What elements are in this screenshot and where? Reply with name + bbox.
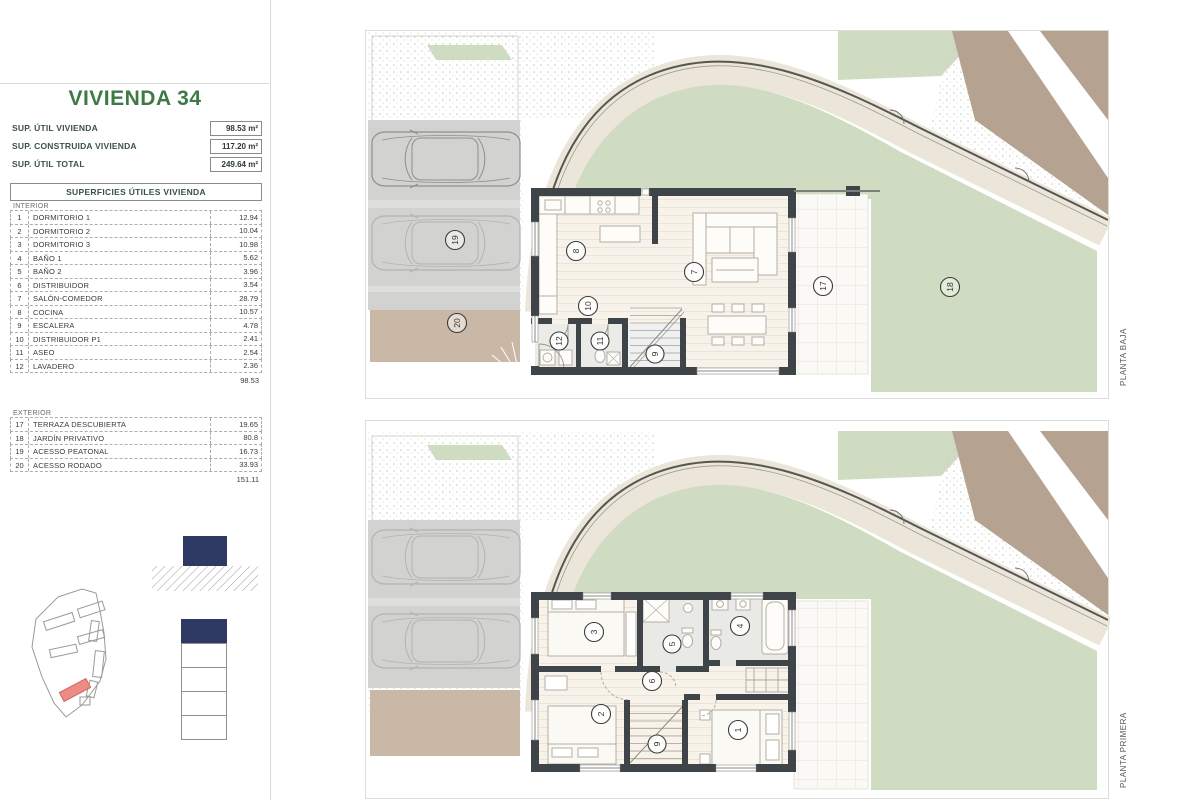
summary-value: 98.53 m² [210, 121, 262, 136]
svg-text:20: 20 [452, 318, 462, 328]
row-name: ESCALERA [29, 319, 211, 332]
row-number: 6 [11, 279, 29, 292]
room-circle: 20 [448, 314, 467, 333]
table-row: 3 DORMITORIO 3 10.98 [10, 237, 262, 252]
row-value: 28.79 [211, 294, 261, 303]
table-row: 5 BAÑO 2 3.96 [10, 264, 262, 279]
row-name: BAÑO 2 [29, 265, 211, 278]
terrace [794, 601, 868, 789]
interior-label: INTERIOR [13, 203, 49, 210]
floor-cell [181, 643, 227, 668]
room-circle: 5 [663, 635, 681, 653]
table-row: 8 COCINA 10.57 [10, 305, 262, 320]
row-name: DISTRIBUIDOR [29, 279, 211, 292]
row-number: 3 [11, 238, 29, 251]
svg-text:10: 10 [583, 301, 593, 311]
row-value: 19.65 [211, 420, 261, 429]
svg-text:4: 4 [735, 623, 745, 628]
table-row: 2 DORMITORIO 2 10.04 [10, 224, 262, 239]
row-value: 16.73 [211, 447, 261, 456]
sidebar-top-rule [0, 83, 269, 84]
planta-baja-plan: 8 7 10 12 11 9 17 18 19 20 [365, 30, 1110, 402]
row-value: 80.8 [211, 433, 261, 442]
row-number: 7 [11, 292, 29, 305]
row-number: 8 [11, 306, 29, 319]
row-number: 11 [11, 346, 29, 359]
svg-text:6: 6 [647, 678, 657, 683]
row-value: 10.98 [211, 240, 261, 249]
svg-text:9: 9 [652, 741, 662, 746]
svg-text:19: 19 [450, 235, 460, 245]
row-name: DORMITORIO 2 [29, 225, 211, 238]
summary-label: SUP. ÚTIL TOTAL [12, 159, 210, 169]
row-name: SALÓN-COMEDOR [29, 292, 211, 305]
interior-total: 98.53 [10, 376, 262, 385]
planta-primera-plan: 3 4 5 6 2 9 1 [365, 420, 1110, 800]
table-row: 20 ACESSO RODADO 33.93 [10, 458, 262, 473]
svg-text:18: 18 [945, 282, 955, 292]
row-number: 19 [11, 445, 29, 458]
table-row: 1 DORMITORIO 1 12.94 [10, 210, 262, 225]
row-name: ACESSO RODADO [29, 459, 211, 472]
room-circle: 17 [814, 277, 833, 296]
row-number: 10 [11, 333, 29, 346]
summary-row: SUP. ÚTIL TOTAL 249.64 m² [12, 155, 262, 173]
svg-text:2: 2 [596, 711, 606, 716]
plan-label-baja: PLANTA BAJA [1119, 328, 1128, 386]
table-row: 10 DISTRIBUIDOR P1 2.41 [10, 332, 262, 347]
row-number: 18 [11, 432, 29, 445]
room-circle: 8 [567, 242, 586, 261]
room-circle: 18 [941, 278, 960, 297]
row-name: COCINA [29, 306, 211, 319]
summary-value: 117.20 m² [210, 139, 262, 154]
room-circle: 3 [585, 623, 604, 642]
summary-label: SUP. CONSTRUIDA VIVIENDA [12, 141, 210, 151]
row-number: 17 [11, 418, 29, 431]
svg-text:3: 3 [589, 629, 599, 634]
row-number: 9 [11, 319, 29, 332]
room-circle: 12 [550, 332, 568, 350]
row-number: 12 [11, 360, 29, 373]
sheet-divider [270, 0, 271, 800]
summary-label: SUP. ÚTIL VIVIENDA [12, 123, 210, 133]
svg-text:5: 5 [667, 641, 677, 646]
row-name: TERRAZA DESCUBIERTA [29, 418, 211, 431]
row-value: 12.94 [211, 213, 261, 222]
row-number: 2 [11, 225, 29, 238]
table-row: 11 ASEO 2.54 [10, 345, 262, 360]
room-circle: 10 [579, 297, 598, 316]
green-patch [427, 45, 512, 60]
svg-text:9: 9 [650, 351, 660, 356]
room-circle: 7 [685, 263, 704, 282]
row-name: DISTRIBUIDOR P1 [29, 333, 211, 346]
ground-hatch [152, 566, 258, 591]
exterior-table: 17 TERRAZA DESCUBIERTA 19.65 18 JARDÍN P… [10, 418, 262, 472]
row-value: 3.54 [211, 280, 261, 289]
parking-area [368, 120, 520, 310]
row-value: 2.54 [211, 348, 261, 357]
table-row: 7 SALÓN-COMEDOR 28.79 [10, 291, 262, 306]
table-row: 18 JARDÍN PRIVATIVO 80.8 [10, 431, 262, 446]
svg-text:1: 1 [733, 727, 743, 732]
interior-table: 1 DORMITORIO 1 12.94 2 DORMITORIO 2 10.0… [10, 211, 262, 373]
row-value: 2.41 [211, 334, 261, 343]
row-name: BAÑO 1 [29, 252, 211, 265]
table-row: 19 ACESSO PEATONAL 16.73 [10, 444, 262, 459]
svg-text:11: 11 [595, 336, 605, 345]
row-number: 1 [11, 211, 29, 224]
row-value: 5.62 [211, 253, 261, 262]
room-circle: 9 [648, 735, 666, 753]
row-name: DORMITORIO 1 [29, 211, 211, 224]
building-section-marker [183, 536, 227, 566]
summary-row: SUP. ÚTIL VIVIENDA 98.53 m² [12, 119, 262, 137]
svg-text:7: 7 [689, 269, 699, 274]
row-name: JARDÍN PRIVATIVO [29, 432, 211, 445]
floor-level-key [181, 620, 227, 740]
exterior-label: EXTERIOR [13, 410, 51, 417]
row-value: 3.96 [211, 267, 261, 276]
summary-row: SUP. CONSTRUIDA VIVIENDA 117.20 m² [12, 137, 262, 155]
plan-label-primera: PLANTA PRIMERA [1119, 712, 1128, 788]
page-title: VIVIENDA 34 [0, 87, 270, 111]
floor-cell-active [181, 619, 227, 644]
floor-cell [181, 667, 227, 692]
exterior-total: 151.11 [10, 475, 262, 484]
table-row: 12 LAVADERO 2.36 [10, 359, 262, 374]
site-minimap [20, 585, 120, 730]
row-name: LAVADERO [29, 360, 211, 373]
parking-area [368, 520, 520, 688]
table-row: 6 DISTRIBUIDOR 3.54 [10, 278, 262, 293]
room-circle: 6 [643, 672, 662, 691]
row-number: 20 [11, 459, 29, 472]
row-value: 4.78 [211, 321, 261, 330]
surface-summary: SUP. ÚTIL VIVIENDA 98.53 m² SUP. CONSTRU… [12, 119, 262, 173]
driveway [370, 690, 520, 756]
svg-text:17: 17 [818, 281, 828, 291]
room-circle: 19 [446, 231, 465, 250]
room-circle: 4 [731, 617, 750, 636]
room-circle: 2 [592, 705, 611, 724]
summary-value: 249.64 m² [210, 157, 262, 172]
floor-cell [181, 691, 227, 716]
section-key [150, 530, 262, 596]
svg-text:8: 8 [571, 248, 581, 253]
row-name: ACESSO PEATONAL [29, 445, 211, 458]
table-row: 4 BAÑO 1 5.62 [10, 251, 262, 266]
room-circle: 1 [729, 721, 748, 740]
green-patch [427, 445, 512, 460]
row-name: DORMITORIO 3 [29, 238, 211, 251]
svg-text:12: 12 [554, 336, 564, 346]
room-circle: 11 [591, 332, 609, 350]
row-value: 10.57 [211, 307, 261, 316]
table-header: SUPERFICIES ÚTILES VIVIENDA [10, 183, 262, 201]
room-circle: 9 [646, 345, 664, 363]
table-row: 9 ESCALERA 4.78 [10, 318, 262, 333]
row-number: 4 [11, 252, 29, 265]
row-value: 33.93 [211, 460, 261, 469]
floor-cell [181, 715, 227, 740]
row-number: 5 [11, 265, 29, 278]
row-name: ASEO [29, 346, 211, 359]
row-value: 10.04 [211, 226, 261, 235]
table-row: 17 TERRAZA DESCUBIERTA 19.65 [10, 417, 262, 432]
row-value: 2.36 [211, 361, 261, 370]
